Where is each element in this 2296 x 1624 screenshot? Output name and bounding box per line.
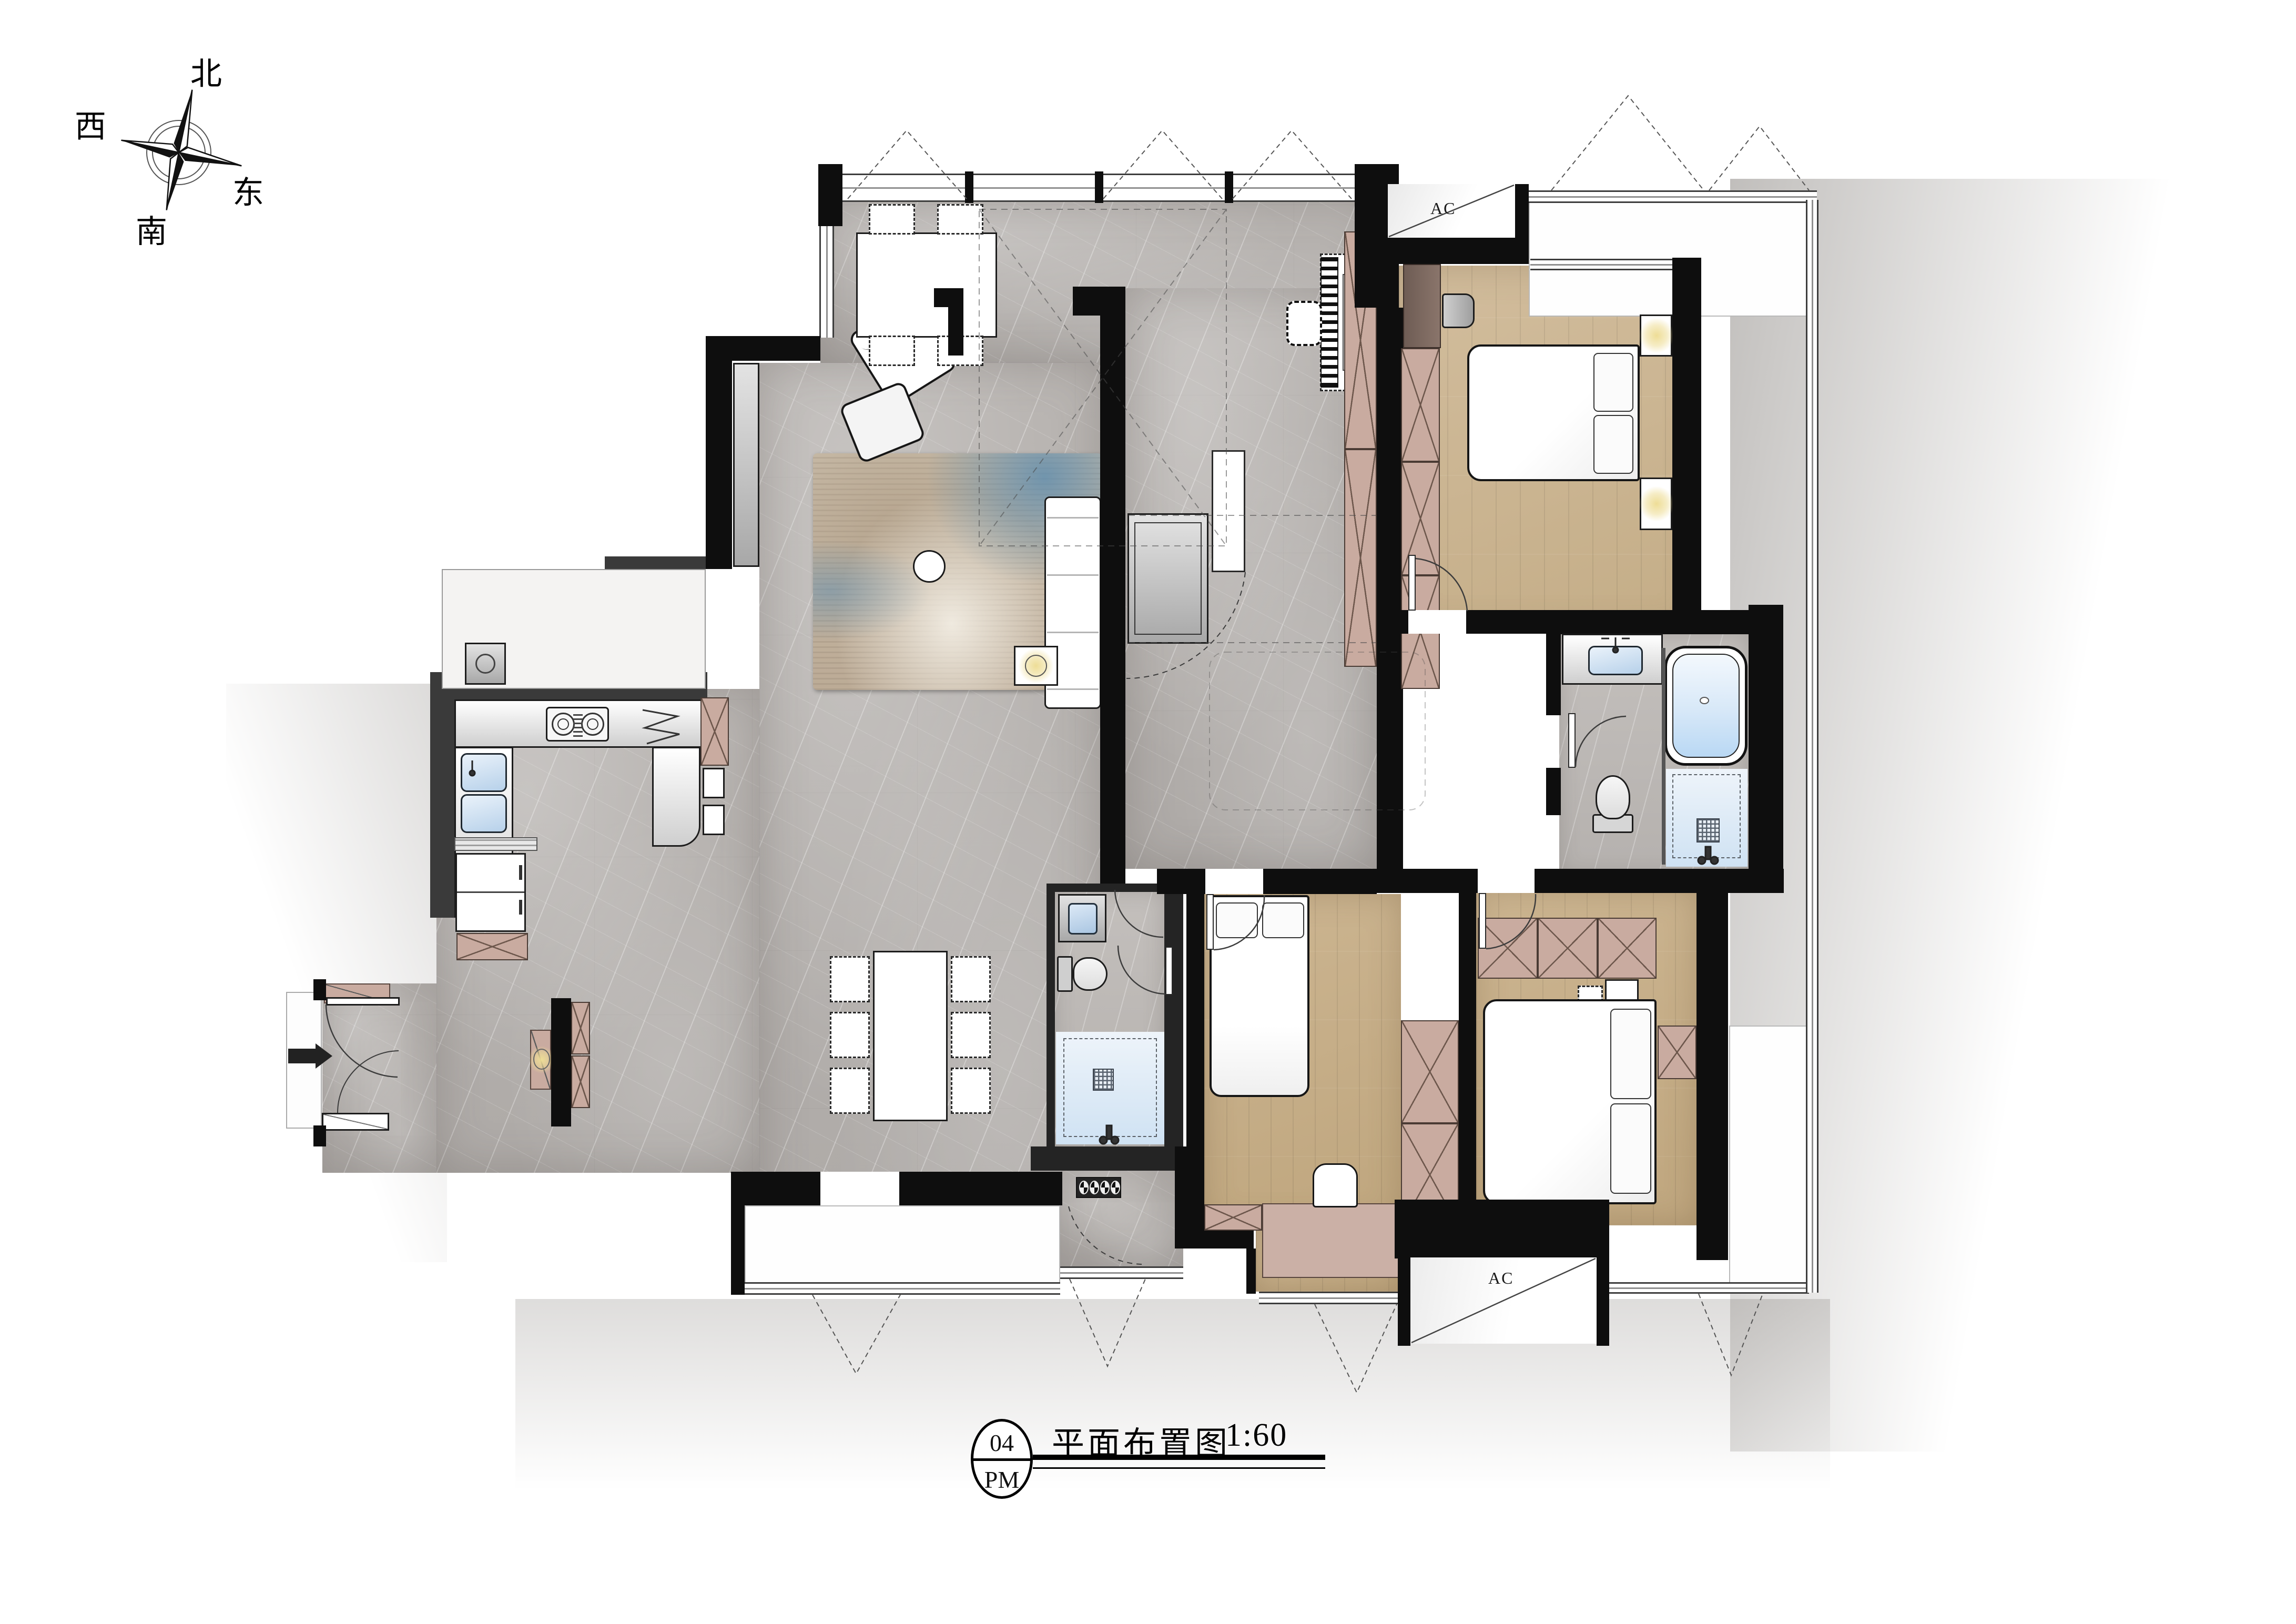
ac-label-south: AC — [1488, 1268, 1513, 1288]
title-badge-divider — [972, 1458, 1031, 1461]
entry-arrow-icon — [288, 1043, 332, 1069]
floor-plan-canvas: AC AC 北 西 东 南 04 PM 平面布置图 1:60 — [0, 0, 2296, 1624]
compass-rose-icon — [105, 79, 252, 226]
title-badge: 04 PM — [971, 1419, 1033, 1499]
compass-label-east: 东 — [232, 167, 264, 213]
compass-label-south: 南 — [136, 206, 167, 252]
drawing-scale: 1:60 — [1225, 1417, 1287, 1454]
linework-layer — [0, 0, 2296, 1624]
title-rule-thin — [1033, 1467, 1325, 1469]
ac-label-master: AC — [1430, 199, 1456, 218]
drawing-title: 平面布置图 — [1052, 1417, 1231, 1464]
compass-label-west: 西 — [75, 101, 106, 147]
title-badge-code: PM — [973, 1466, 1030, 1494]
compass-label-north: 北 — [190, 48, 222, 94]
title-badge-number: 04 — [973, 1429, 1030, 1457]
